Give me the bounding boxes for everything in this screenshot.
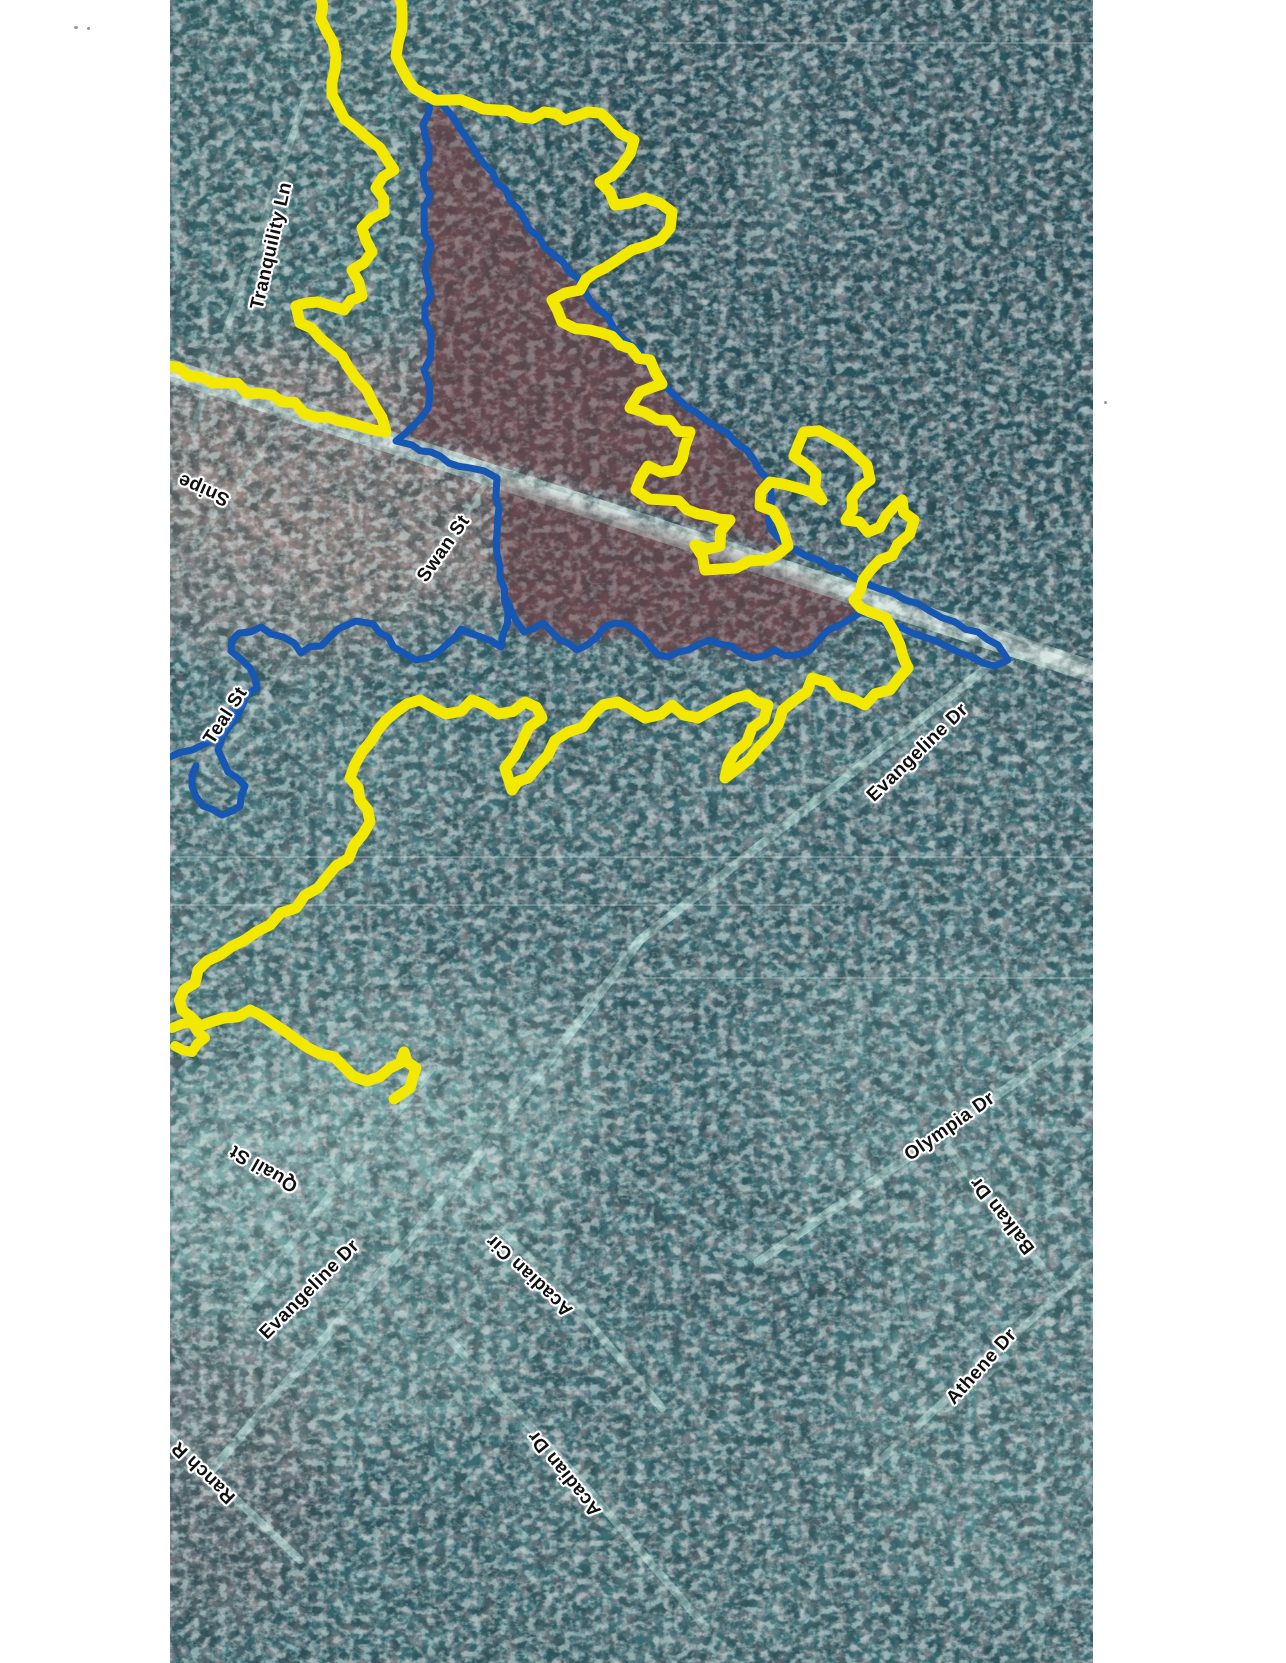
aerial-photo-canvas <box>170 0 1093 1663</box>
scan-speck <box>1104 401 1107 404</box>
scan-speck <box>87 27 90 30</box>
aerial-map: Tranquility Ln Snipe Swan St Teal St Eva… <box>170 0 1093 1663</box>
scanned-map-page: Tranquility Ln Snipe Swan St Teal St Eva… <box>0 0 1286 1663</box>
scan-speck <box>74 26 78 29</box>
